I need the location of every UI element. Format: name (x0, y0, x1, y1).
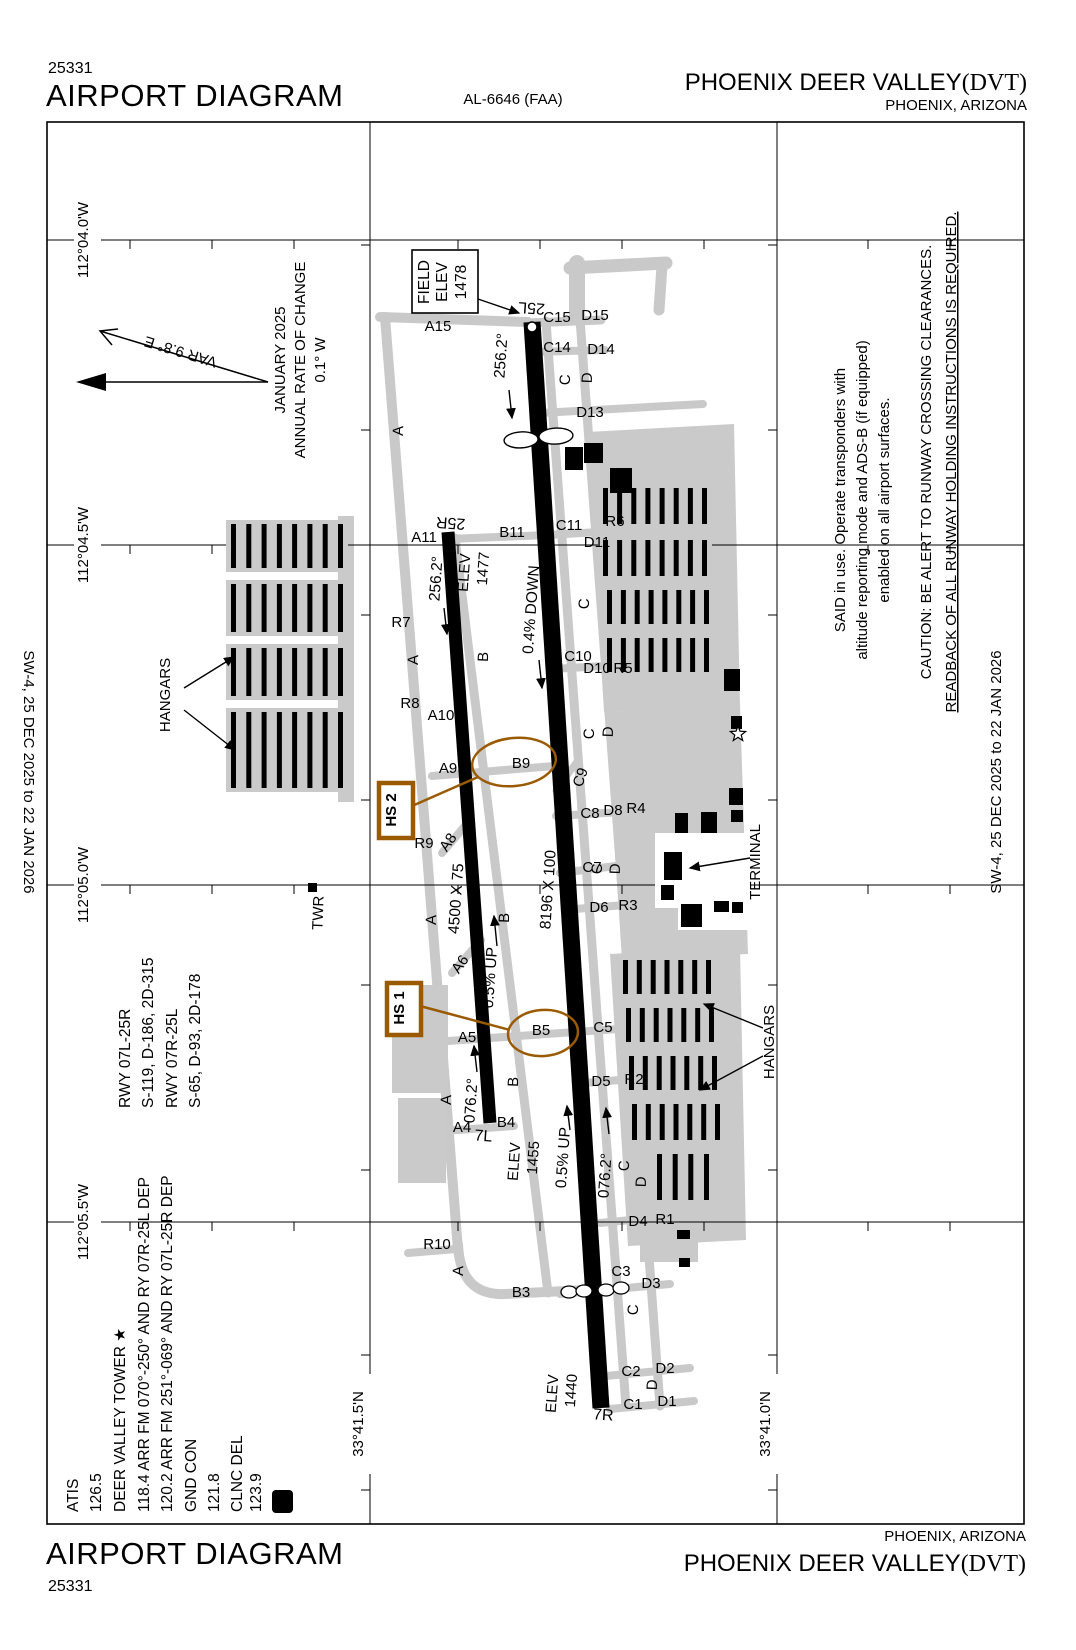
lon-label-3: 112°05.0'W (75, 846, 92, 923)
hangar-stripe (246, 712, 251, 788)
elev-1455-label: ELEV (505, 1142, 525, 1181)
threshold-circle-25l (527, 322, 537, 332)
hangar-stripe (621, 590, 626, 624)
tower-label: TWR (309, 895, 327, 930)
hangar-stripe (698, 1056, 703, 1090)
hangar-stripe (709, 1008, 714, 1042)
hangar-stripe (231, 524, 236, 568)
hangar-stripe (649, 590, 654, 624)
hangar-stripe (702, 540, 707, 576)
hangar-stripe (645, 488, 650, 524)
hangar-stripe (687, 1104, 692, 1140)
taxiway-label-b-3: B (505, 1077, 522, 1088)
taxiway-label-a-1: A (390, 426, 407, 437)
taxiway-label-d8: D8 (603, 802, 622, 819)
taxiway-label-a9: A9 (439, 760, 457, 777)
hangar-stripe (307, 712, 312, 788)
note-transponder-3: enabled on all airport surfaces. (876, 397, 893, 602)
taxiway-label-r8: R8 (400, 695, 419, 712)
comm-tower-freq2: 120.2 ARR FM 251°-069° AND RY 07L-25R DE… (159, 1175, 176, 1512)
hangar-stripe (657, 1154, 662, 1200)
hangar-stripe (323, 712, 328, 788)
hangar-row (226, 708, 348, 792)
comm-gnd-label: GND CON (183, 1439, 200, 1512)
hangar-stripe (701, 1104, 706, 1140)
hangar-stripe (706, 960, 711, 994)
taxiway-label-c2: C2 (621, 1363, 640, 1380)
hangar-stripe (262, 584, 267, 632)
heading-arrow (474, 1046, 477, 1072)
taxiway-label-c8: C8 (580, 805, 599, 822)
heading-arrow (444, 608, 447, 634)
hangars-label-left: HANGARS (157, 658, 174, 732)
taxiway-label-r9: R9 (414, 835, 433, 852)
hangar-stripe (665, 960, 670, 994)
elev-1455-value: 1455 (524, 1140, 543, 1174)
field-elev-arrow (478, 299, 519, 313)
taxiway-label-c1: C1 (623, 1396, 642, 1413)
hangar-stripe (246, 584, 251, 632)
taxiway-label-d2: D2 (655, 1360, 674, 1377)
hangar-stripe (674, 540, 679, 576)
heading-arrow (509, 390, 512, 418)
margin-date-right: SW-4, 25 DEC 2025 to 22 JAN 2026 (988, 650, 1005, 893)
hangar-stripe (307, 524, 312, 568)
hangar-stripe (262, 524, 267, 568)
hangar-stripe (688, 540, 693, 576)
comm-d-symbol: D (274, 1495, 291, 1507)
note-transponder-2: altitude reporting mode and ADS-B (if eq… (854, 340, 871, 659)
taxiway-label-a-5: A (450, 1266, 467, 1277)
hangar-stripe (277, 648, 282, 696)
hdg-076-2: 076.2° (595, 1153, 615, 1199)
comm-atis-label: ATIS (65, 1479, 82, 1512)
comm-gnd-freq: 121.8 (206, 1473, 223, 1512)
hangar-stripe (651, 960, 656, 994)
taxiway-label-c-4: C (589, 863, 606, 875)
hangar-stripe (674, 1104, 679, 1140)
hangar-stripe (631, 488, 636, 524)
comm-tower-label: DEER VALLEY TOWER ★ (112, 1328, 129, 1512)
taxiway-label-b-2: B (496, 913, 513, 924)
hangar-stripe (702, 488, 707, 524)
taxiway-label-r10: R10 (423, 1236, 451, 1253)
hangar-stripe (681, 1008, 686, 1042)
hangar-stripe (338, 584, 343, 632)
hangar-stripe (660, 540, 665, 576)
taxiway-label-b5: B5 (532, 1022, 550, 1039)
taxiway-label-d5: D5 (591, 1073, 610, 1090)
elev-1477-value: 1477 (474, 551, 493, 585)
hangar-stripe (323, 648, 328, 696)
hangar-stripe (623, 960, 628, 994)
taxiway-label-d-1: D (579, 372, 596, 384)
taxiway-label-b-1: B (475, 652, 492, 663)
taxiway-label-b4: B4 (497, 1114, 515, 1131)
lon-label-1: 112°04.0'W (75, 201, 92, 278)
hangar-stripe (338, 648, 343, 696)
hangar-stripe (657, 1056, 662, 1090)
rwy-dim-main: 8196 X 100 (537, 849, 560, 930)
taxiway-label-d13: D13 (576, 404, 604, 421)
tower-square-icon (308, 883, 317, 892)
hangar-stripe (338, 712, 343, 788)
hangar-stripe (632, 1104, 637, 1140)
elev-1440-value: 1440 (562, 1373, 581, 1407)
hangar-stripe (662, 638, 667, 672)
airport-diagram-page: 25331 AIRPORT DIAGRAM AL-6646 (FAA) PHOE… (0, 0, 1076, 1650)
hangar-stripe (695, 1008, 700, 1042)
hangar-stripe (692, 960, 697, 994)
hangar-stripe (654, 1008, 659, 1042)
hangar-stripe (231, 584, 236, 632)
taxiway-label-r2: R2 (624, 1071, 643, 1088)
map-text-layer: 112°04.0'W112°04.5'W112°05.0'W112°05.5'W… (20, 201, 1005, 1512)
rwy-end-7r: 7R (593, 1406, 615, 1424)
taxiway-label-d1: D1 (657, 1393, 676, 1410)
taxiway-label-c-6: C (625, 1304, 642, 1316)
north-arrow-icon (76, 373, 268, 391)
taxiway-label-c-2: C (576, 598, 593, 610)
taxiway-label-d-3: D (607, 863, 624, 875)
taxiway-label-r7: R7 (391, 614, 410, 631)
taxiway-label-a-4: A (438, 1095, 455, 1106)
hangar-stripe (676, 590, 681, 624)
hangar-stripe (292, 584, 297, 632)
hangar-stripe (635, 638, 640, 672)
taxiway-label-a15: A15 (425, 318, 452, 335)
hangar-row (226, 580, 348, 636)
margin-date-left: SW-4, 25 DEC 2025 to 22 JAN 2026 (20, 650, 37, 893)
hangar-stripe (704, 1154, 709, 1200)
terminal-label: TERMINAL (747, 824, 764, 900)
taxiway-label-r4: R4 (626, 800, 645, 817)
hangar-stripe (323, 524, 328, 568)
field-elev-value: 1478 (453, 265, 470, 299)
hangar-stripe (678, 960, 683, 994)
taxiway-label-r3: R3 (618, 897, 637, 914)
taxiway-label-d10: D10 (583, 660, 611, 677)
lon-label-4: 112°05.5'W (75, 1183, 92, 1260)
taxiway-label-a5: A5 (458, 1029, 476, 1046)
note-caution-1: CAUTION: BE ALERT TO RUNWAY CROSSING CLE… (918, 245, 935, 680)
slope-arrow (567, 1106, 570, 1130)
taxiway-label-c11: C11 (556, 517, 582, 534)
hangar-stripe (277, 524, 282, 568)
slope-05-up-2: 0.5% UP (553, 1127, 574, 1189)
hangar-stripe (712, 1056, 717, 1090)
taxiway-label-r1: R1 (655, 1211, 674, 1228)
taxiway-label-c15: C15 (543, 309, 571, 326)
hangar-stripe (646, 1104, 651, 1140)
rwy-end-25r: 25R (435, 513, 465, 532)
hangars-label-right: HANGARS (761, 1005, 778, 1079)
hangar-stripe (607, 590, 612, 624)
lat-label-1: 33°41.5'N (350, 1391, 367, 1457)
rwy-dim-short: 4500 X 75 (446, 863, 468, 935)
annual-rate-2: ANNUAL RATE OF CHANGE (292, 262, 309, 459)
taxiway-label-b11: B11 (499, 524, 525, 541)
hangar-stripe (668, 1008, 673, 1042)
taxiway-label-a10: A10 (428, 707, 455, 724)
slope-05-up-1: 0.5% UP (480, 947, 501, 1009)
hangar-stripe (262, 712, 267, 788)
taxiway-label-a11: A11 (411, 529, 437, 546)
taxiway-label-c14: C14 (543, 339, 571, 356)
comm-clnc-label: CLNC DEL (229, 1435, 246, 1512)
hangar-stripe (292, 524, 297, 568)
taxiway-label-d11: D11 (584, 534, 610, 551)
comm-tower-freq1: 118.4 ARR FM 070°-250° AND RY 07R-25L DE… (136, 1177, 153, 1512)
hotspot-2-label: HS 2 (383, 793, 400, 826)
hangar-stripe (231, 648, 236, 696)
elev-1477-label: ELEV (455, 553, 475, 592)
hangar-stripe (617, 540, 622, 576)
note-transponder-1: SAID in use. Operate transponders with (832, 368, 849, 632)
hangar-stripe (338, 524, 343, 568)
hangar-stripe (673, 1154, 678, 1200)
taxiway-label-r5: R5 (613, 660, 632, 677)
note-caution-2: READBACK OF ALL RUNWAY HOLDING INSTRUCTI… (943, 212, 960, 713)
hangar-stripe (635, 590, 640, 624)
taxiway-label-a-2: A (405, 655, 422, 666)
hangar-stripe (277, 712, 282, 788)
hangar-stripe (688, 488, 693, 524)
hangar-stripe (704, 590, 709, 624)
taxiway-label-a4: A4 (453, 1119, 471, 1136)
hangar-stripe (662, 590, 667, 624)
taxiway-label-c-5: C (616, 1160, 633, 1172)
elev-1440-label: ELEV (543, 1374, 563, 1413)
hangar-stripe (676, 638, 681, 672)
hangar-stripe (704, 638, 709, 672)
taxiway-label-d4: D4 (628, 1213, 647, 1230)
hangar-stripe (323, 584, 328, 632)
comm-atis-freq: 126.5 (88, 1473, 105, 1512)
rwy-data-4: S-65, D-93, 2D-178 (187, 974, 204, 1108)
taxiway-label-a-3: A (423, 915, 440, 926)
hangar-stripe (631, 540, 636, 576)
hangar-stripe (277, 584, 282, 632)
hangar-stripe (292, 712, 297, 788)
hotspot-1-label: HS 1 (391, 991, 408, 1024)
taxiway-label-b9: B9 (512, 755, 530, 772)
hangar-stripe (688, 1154, 693, 1200)
taxiway-label-b3: B3 (512, 1284, 530, 1301)
hangar-stripe (674, 488, 679, 524)
hangar-row (602, 586, 714, 628)
field-elev-line1: FIELD (416, 260, 433, 304)
taxiway-label-d3: D3 (641, 1275, 660, 1292)
hangar-stripe (246, 524, 251, 568)
taxiway-label-d-4: D (633, 1176, 650, 1188)
hangar-stripe (649, 638, 654, 672)
lat-label-2: 33°41.0'N (757, 1391, 774, 1457)
field-elev-line2: ELEV (434, 262, 451, 302)
terminal-building (664, 852, 682, 880)
rwy-end-25l: 25L (518, 298, 546, 317)
hangar-stripe (262, 648, 267, 696)
annual-rate-3: 0.1° W (312, 337, 329, 383)
hangar-stripe (231, 712, 236, 788)
hangar-stripe (660, 1104, 665, 1140)
annual-rate-1: JANUARY 2025 (272, 306, 289, 413)
comm-clnc-freq: 123.9 (248, 1473, 265, 1512)
hangar-stripe (637, 960, 642, 994)
taxiway-label-c-3: C (581, 728, 598, 740)
taxiway-label-d-2: D (600, 726, 617, 738)
var-label: VAR 9.8° E (142, 332, 219, 370)
hdg-076-1: 076.2° (461, 1078, 481, 1124)
airport-diagram-map: 112°04.0'W112°04.5'W112°05.0'W112°05.5'W… (0, 0, 1076, 1650)
taxiway-label-c3: C3 (611, 1263, 630, 1280)
hdg-256-1: 256.2° (491, 333, 511, 379)
hangar-row (598, 536, 712, 580)
hangar-stripe (660, 488, 665, 524)
hangar-stripe (307, 584, 312, 632)
taxiway-label-d15: D15 (581, 307, 609, 324)
hangar-row (226, 520, 348, 572)
taxiway-label-d14: D14 (587, 341, 615, 358)
rwy-data-2: S-119, D-186, 2D-315 (140, 958, 157, 1109)
slope-arrow (539, 660, 542, 688)
taxiway-label-c-1: C (557, 374, 574, 386)
hangar-stripe (640, 1008, 645, 1042)
hangar-stripe (246, 648, 251, 696)
hangar-stripe (292, 648, 297, 696)
taxiway-label-c5: C5 (593, 1019, 612, 1036)
hdg-256-2: 256.2° (426, 556, 446, 602)
hangar-stripe (626, 1008, 631, 1042)
hangar-stripe (715, 1104, 720, 1140)
taxiway-label-d-5: D (644, 1379, 661, 1391)
rwy-end-7l: 7L (474, 1127, 493, 1145)
hangar-stripe (690, 638, 695, 672)
hangar-stripe (684, 1056, 689, 1090)
slope-04-down: 0.4% DOWN (520, 565, 543, 655)
taxiway-label-r6: R6 (605, 513, 624, 530)
taxiway-label-d6: D6 (589, 899, 608, 916)
hangar-stripe (307, 648, 312, 696)
hangar-stripe (690, 590, 695, 624)
hangar-stripe (645, 540, 650, 576)
rwy-data-1: RWY 07L-25R (117, 1009, 134, 1108)
lon-label-2: 112°04.5'W (75, 506, 92, 583)
rwy-data-3: RWY 07R-25L (164, 1008, 181, 1108)
hangar-row (226, 644, 348, 700)
hangar-stripe (671, 1056, 676, 1090)
